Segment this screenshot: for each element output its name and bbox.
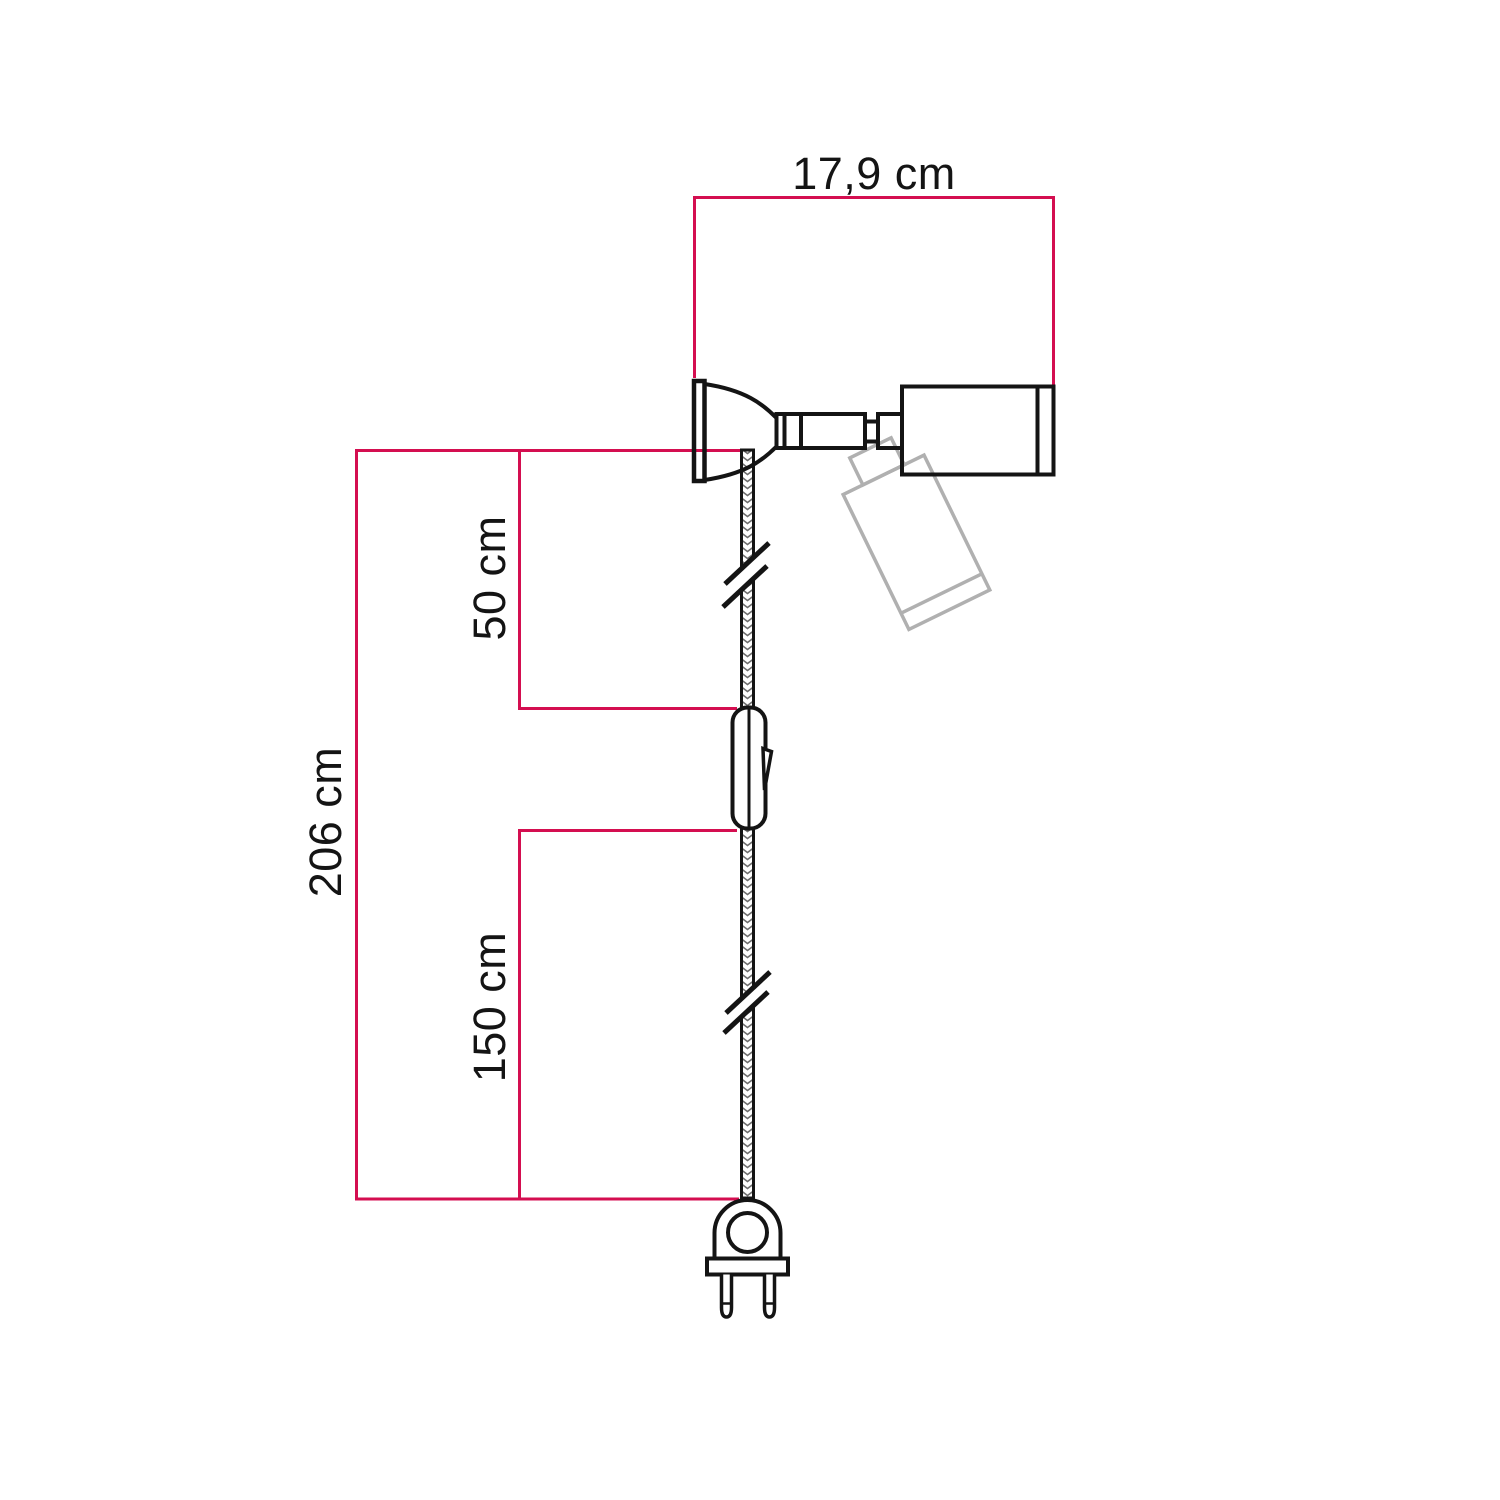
lamp-dimension-diagram: 17,9 cm 206 cm 50 cm 150 cm (0, 0, 1500, 1500)
label-total-length: 206 cm (300, 747, 351, 898)
ghost-spotlight-body (843, 455, 990, 629)
ghost-spotlight-rim (901, 574, 982, 613)
dimension-line-spot-width (695, 198, 1054, 386)
label-spot-width: 17,9 cm (792, 148, 956, 199)
label-upper-section: 50 cm (464, 515, 515, 640)
plug-pin-right (765, 1275, 775, 1318)
plug-pin-left (722, 1275, 732, 1318)
power-plug (707, 1200, 788, 1317)
dimension-labels: 17,9 cm 206 cm 50 cm 150 cm (300, 148, 956, 1082)
switch-lever (763, 749, 772, 791)
dimension-line-upper-section (520, 451, 738, 709)
dimension-line-total-length (357, 451, 742, 1200)
diagram-canvas: 17,9 cm 206 cm 50 cm 150 cm (0, 0, 1500, 1500)
dimension-lines (357, 198, 1054, 1200)
label-lower-section: 150 cm (464, 932, 515, 1083)
stem-collar (777, 414, 802, 448)
stem-tube (801, 414, 865, 448)
dimension-line-lower-section (520, 831, 738, 1200)
spotlight-body (902, 387, 1054, 475)
inline-switch (733, 708, 772, 829)
ghost-spotlight-tilted (830, 428, 990, 629)
wall-mount-plate (694, 381, 705, 481)
wall-mount-bell-top-curve (705, 384, 777, 418)
plug-ring-hole (728, 1213, 767, 1252)
plug-flange (707, 1259, 788, 1275)
